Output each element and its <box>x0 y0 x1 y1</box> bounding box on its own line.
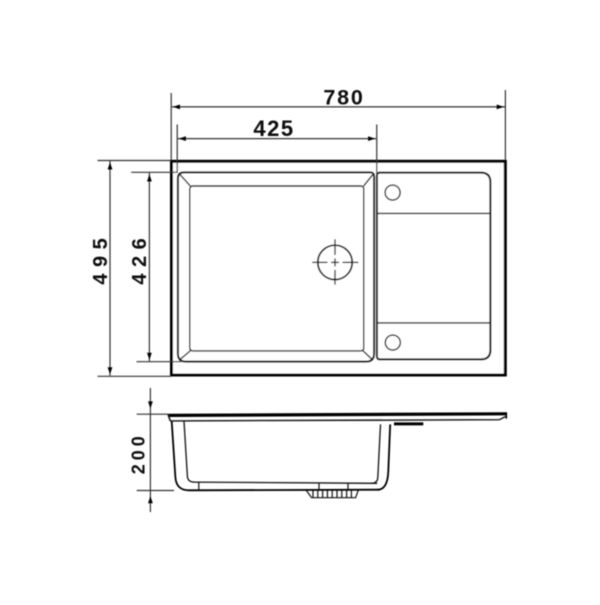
svg-text:780: 780 <box>323 86 364 110</box>
svg-text:200: 200 <box>129 432 149 474</box>
svg-text:495: 495 <box>90 232 112 285</box>
svg-text:425: 425 <box>253 116 294 141</box>
svg-text:426: 426 <box>129 232 151 285</box>
